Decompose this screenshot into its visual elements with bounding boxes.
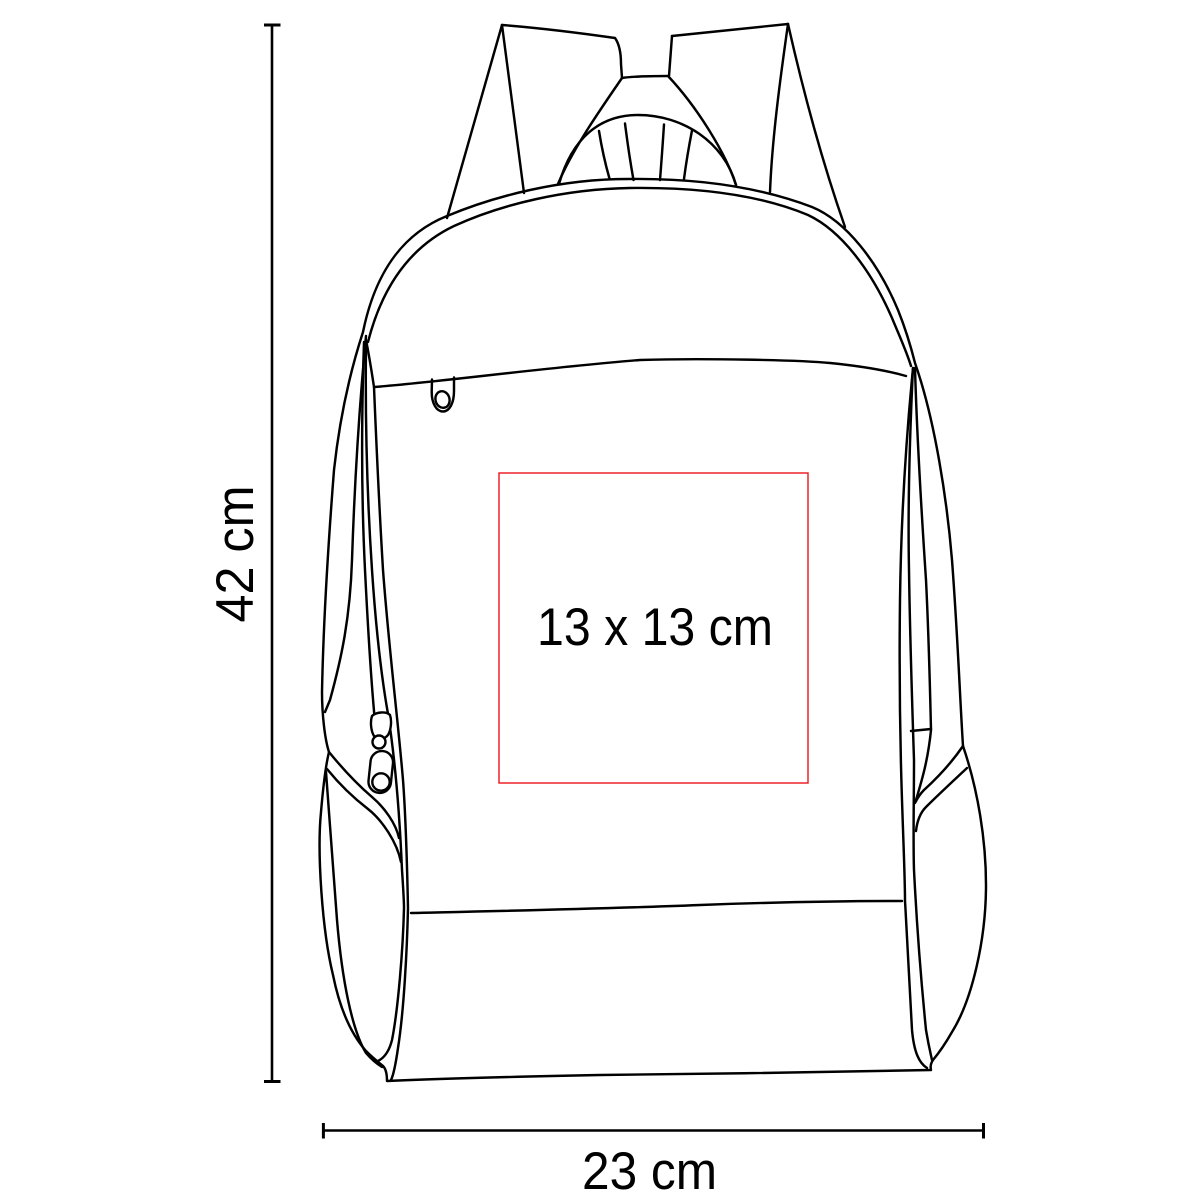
svg-text:13 x 13 cm: 13 x 13 cm: [537, 598, 773, 657]
svg-text:23 cm: 23 cm: [582, 1142, 717, 1200]
svg-text:42 cm: 42 cm: [206, 486, 265, 623]
